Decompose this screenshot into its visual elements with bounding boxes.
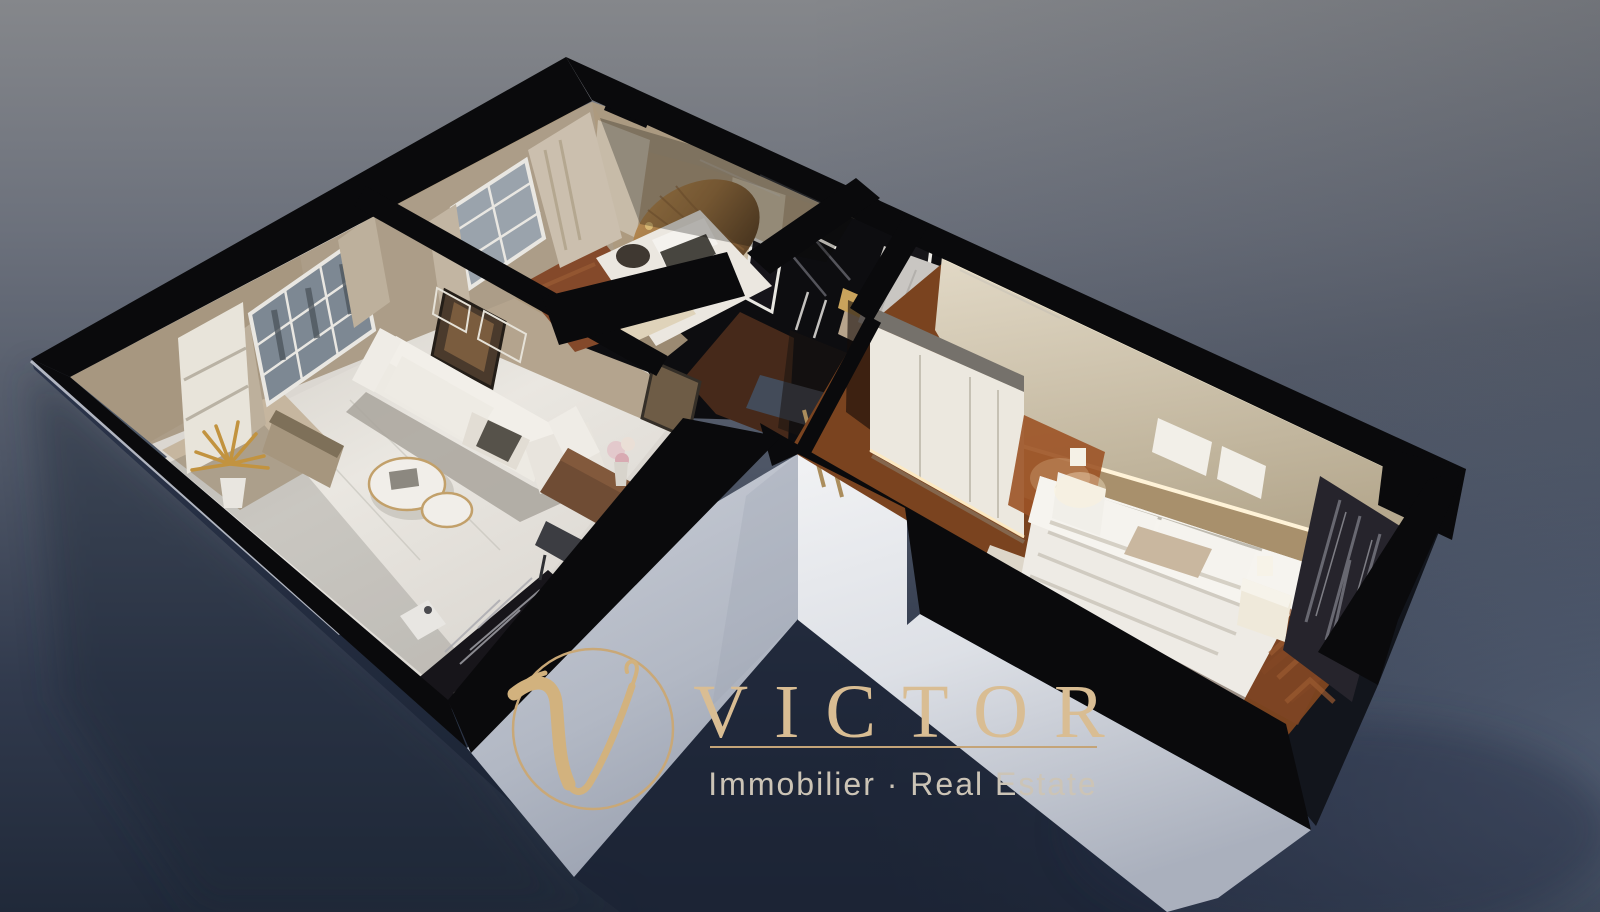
svg-text:VICTOR: VICTOR [693,670,1131,754]
svg-text:Immobilier · Real Estate: Immobilier · Real Estate [708,766,1097,802]
